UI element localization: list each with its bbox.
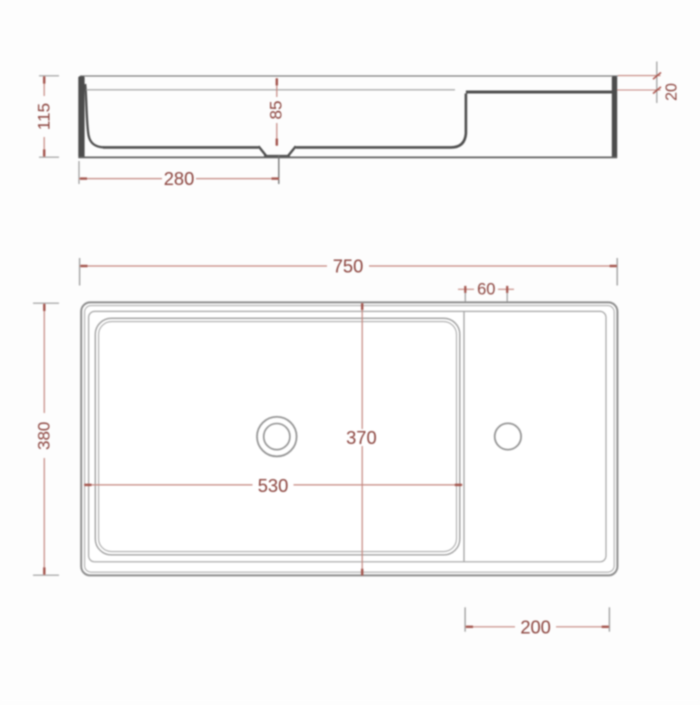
svg-text:20: 20 xyxy=(664,83,681,101)
svg-text:530: 530 xyxy=(258,475,289,496)
svg-text:370: 370 xyxy=(346,427,377,448)
svg-text:750: 750 xyxy=(333,256,364,277)
svg-text:60: 60 xyxy=(477,281,495,299)
svg-text:280: 280 xyxy=(164,168,195,189)
svg-text:115: 115 xyxy=(34,103,53,130)
svg-text:200: 200 xyxy=(520,616,551,637)
svg-text:380: 380 xyxy=(35,422,54,450)
svg-text:85: 85 xyxy=(267,101,286,120)
